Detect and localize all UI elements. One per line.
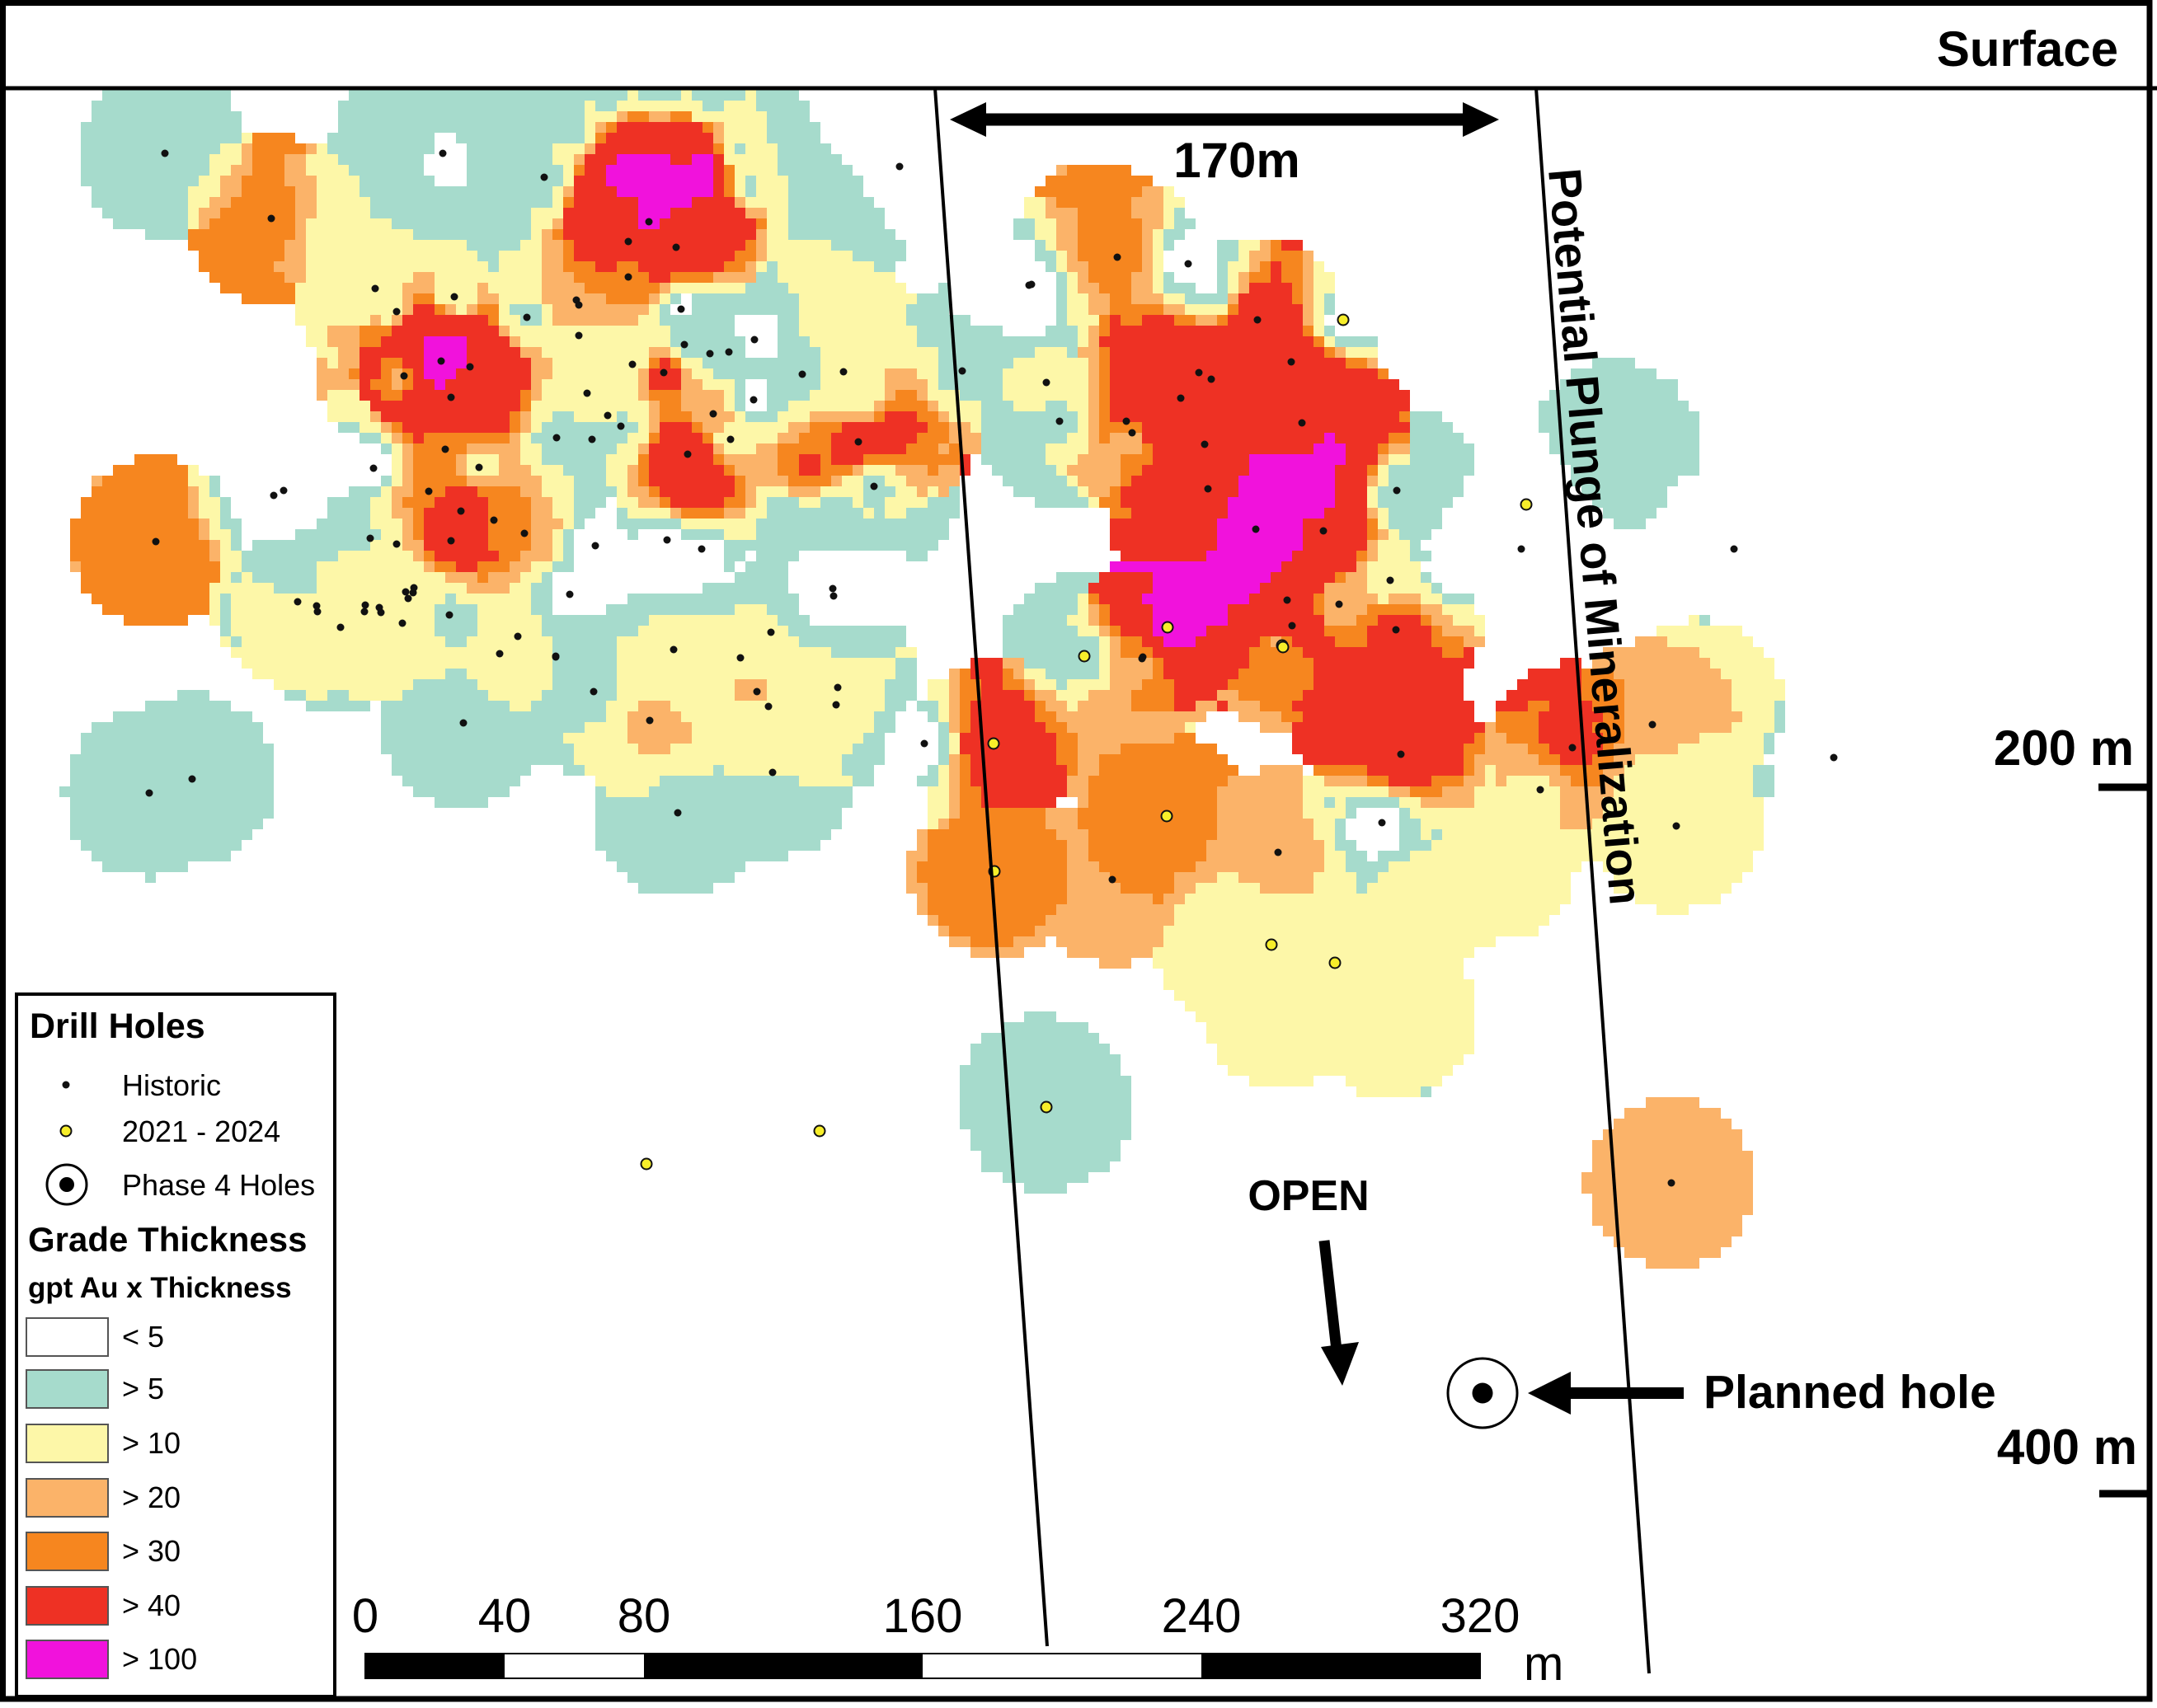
svg-text:> 30: > 30 [122,1534,181,1568]
svg-text:> 10: > 10 [122,1426,181,1460]
svg-text:0: 0 [352,1589,378,1643]
svg-text:2021 - 2024: 2021 - 2024 [122,1114,280,1148]
svg-text:OPEN: OPEN [1248,1172,1369,1220]
svg-text:Planned hole: Planned hole [1704,1366,1996,1419]
svg-text:400 m: 400 m [1997,1419,2137,1475]
svg-text:> 5: > 5 [122,1372,164,1405]
svg-text:> 20: > 20 [122,1480,181,1514]
svg-text:80: 80 [618,1589,671,1643]
svg-text:Drill Holes: Drill Holes [30,1006,205,1046]
svg-text:< 5: < 5 [122,1320,164,1354]
svg-text:320: 320 [1440,1589,1520,1643]
svg-text:m: m [1524,1637,1563,1691]
svg-text:Grade Thickness: Grade Thickness [28,1220,307,1259]
svg-text:160: 160 [883,1589,963,1643]
svg-text:Historic: Historic [122,1068,221,1102]
svg-text:Phase 4 Holes: Phase 4 Holes [122,1168,315,1202]
svg-text:> 100: > 100 [122,1642,197,1676]
svg-text:40: 40 [478,1589,532,1643]
svg-text:gpt Au x Thickness: gpt Au x Thickness [28,1272,292,1304]
svg-text:Surface: Surface [1937,21,2118,77]
svg-text:200 m: 200 m [1994,720,2134,776]
svg-text:> 40: > 40 [122,1588,181,1622]
svg-text:170m: 170m [1173,133,1299,188]
svg-text:240: 240 [1162,1589,1242,1643]
